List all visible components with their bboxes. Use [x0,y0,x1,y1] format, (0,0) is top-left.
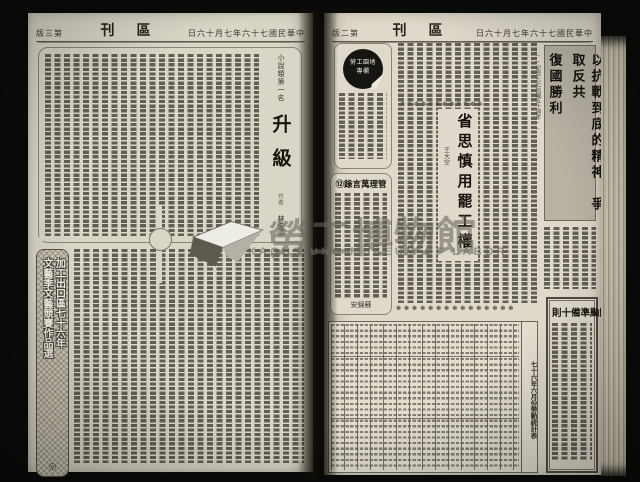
management-quotes-box: ⑫錄言萬理管 安錦蘇 [330,173,392,315]
table-caption: 七十六年六月份勞動統計表 [521,322,537,472]
novel-byline: 林俊德 [275,215,285,236]
column-badge-article: 勞工園地 專欄 [334,43,392,169]
newspaper-masthead: 刊區 [79,20,173,41]
divider-circle-ornament [149,228,172,251]
edition-label: 版三第 [36,28,63,41]
essay-headline-block: 省思慎用罷工權 王大空 [438,109,478,261]
novel-title: 升級 [267,114,294,182]
right-page: 版二第 刊區 日六十月七年六十七國民華中 勞工園地 專欄 ⑫錄言萬理管 安錦蘇 … [324,13,601,475]
lead-headline-box: 以抗戰到底的精神 爭取反共 復國勝利 ──紀念七七抗戰五十週年── [544,45,596,221]
left-page: 版三第 刊區 日六十月七年六十七國民華中 小說類第一名 升級 作者 林俊德 加工… [28,13,313,472]
novel-kicker: 小說類第一名 [275,54,285,102]
scanned-newspaper-spread: 版三第 刊區 日六十月七年六十七國民華中 小說類第一名 升級 作者 林俊德 加工… [0,0,640,482]
typhoon-tips-box: 則十備準颱防 [546,297,598,473]
newspaper-masthead: 刊區 [371,20,465,41]
typhoon-box-title: 則十備準颱防 [552,305,592,319]
right-page-header: 版二第 刊區 日六十月七年六十七國民華中 [332,19,593,42]
banner-line-right: 加工出口區七十六年 [53,258,65,348]
ornament-row: ✽✽✽✽✽✽✽✽✽✽✽✽✽✽✽ [396,305,536,312]
body-text-columns [552,323,592,461]
body-text-columns [335,193,387,298]
arts-festival-banner: 加工出口區七十六年 文藝季文藝競賽作品選 ◎ [36,249,69,477]
publication-date: 日六十月七年六十七國民華中 [188,28,305,41]
page-stack-edge [601,36,626,476]
edition-label: 版二第 [332,28,359,41]
novel-title-column: 小說類第一名 升級 作者 林俊德 [265,54,295,236]
left-page-header: 版三第 刊區 日六十月七年六十七國民華中 [36,19,305,42]
body-text-columns [74,249,304,463]
essay-headline: 省思慎用罷工權 [454,113,475,261]
essay-byline: 王大空 [442,147,451,261]
column-badge: 勞工園地 專欄 [343,49,383,89]
banner-seal-ornament: ◎ [49,461,57,472]
quotes-box-title: ⑫錄言萬理管 [335,178,387,190]
labor-statistics-table: 七十六年六月份勞動統計表 [328,321,538,473]
badge-text-line2: 專欄 [343,66,383,75]
quotes-signature: 安錦蘇 [335,300,387,310]
lead-headline-kicker: ──紀念七七抗戰五十週年── [534,53,542,213]
body-text-columns [339,93,387,159]
badge-text-line1: 勞工園地 [343,49,383,66]
body-text-columns [45,54,259,236]
body-text-columns [544,227,596,289]
ornament-row: ✽✽✽✽✽✽✽✽✽✽✽✽ [400,101,536,108]
table-column-rules [331,324,519,470]
lead-headline-sub: 復國勝利 [546,53,565,213]
publication-date: 日六十月七年六十七國民華中 [476,28,593,41]
banner-line-left: 文藝季文藝競賽作品選 [41,258,53,358]
novel-byline-label: 作者 [276,193,285,205]
statistics-grid [329,322,521,472]
novel-article-frame: 小說類第一名 升級 作者 林俊德 [38,47,302,243]
